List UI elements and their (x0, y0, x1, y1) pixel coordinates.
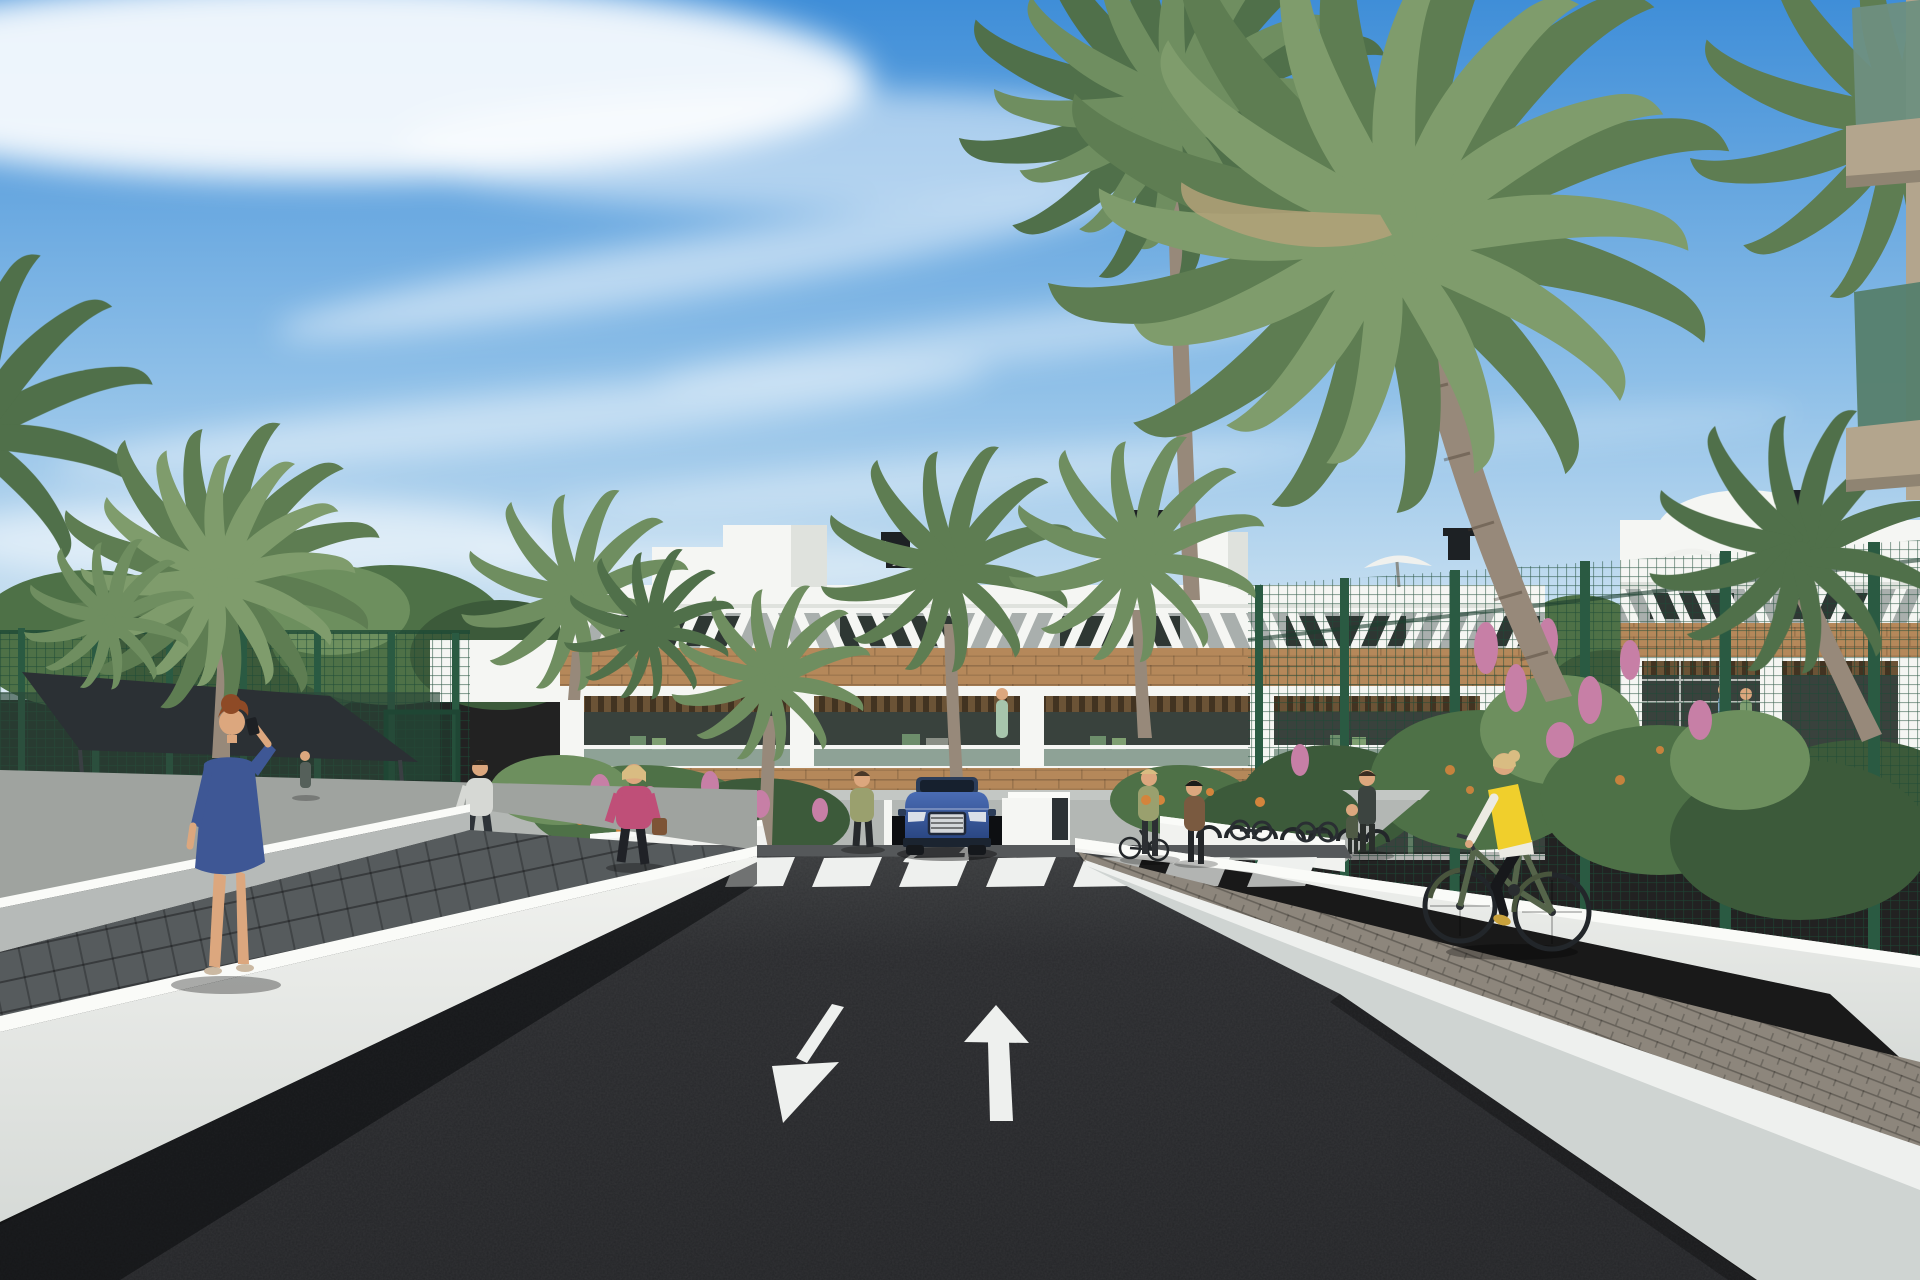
render-canvas (0, 0, 1920, 1280)
kiosk (1008, 792, 1070, 846)
balcony-figure (996, 688, 1008, 738)
architectural-render (0, 0, 1920, 1280)
